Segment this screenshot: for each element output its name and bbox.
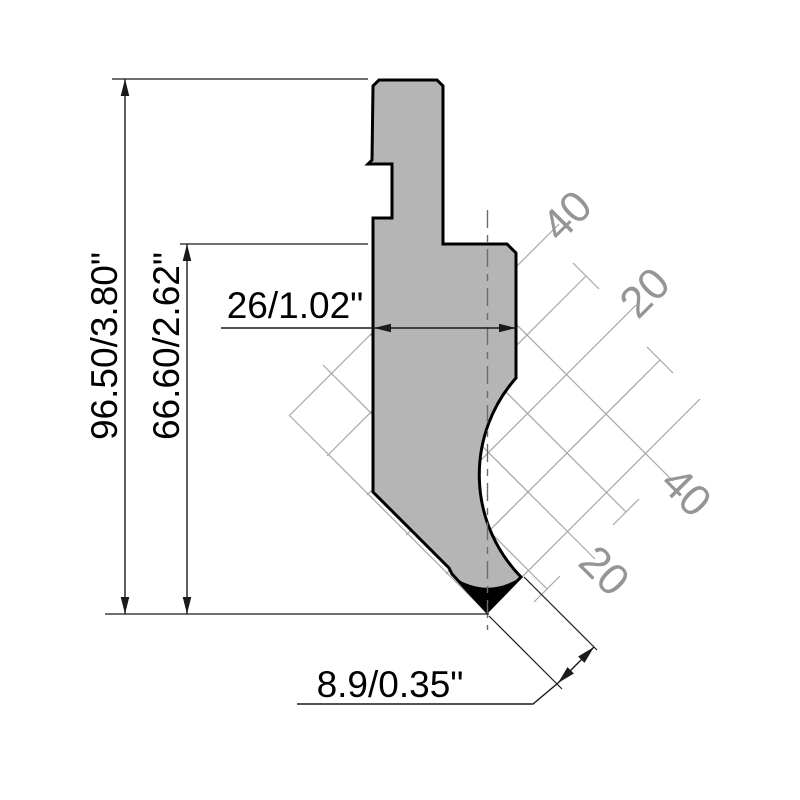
extension-line-apex [489, 616, 562, 689]
technical-drawing-canvas: 40 20 40 20 96.50/3.80" 66.60/2.62 [0, 0, 800, 800]
overall-height-text: 96.50/3.80" [84, 252, 125, 440]
working-height-text: 66.60/2.62" [146, 252, 187, 440]
arrow-up [121, 79, 130, 96]
punch-body [368, 80, 521, 612]
punch-profile-drawing: 40 20 40 20 96.50/3.80" 66.60/2.62 [0, 0, 800, 800]
punch-outline [368, 80, 521, 612]
body-width-text: 26/1.02" [227, 285, 364, 326]
arrow-down [121, 597, 130, 614]
arrow-down [183, 597, 192, 614]
dimension-tip-flat: 8.9/0.35" [297, 577, 597, 705]
grid-label-20-upper: 20 [610, 258, 679, 327]
extension-line-flat-end [524, 577, 597, 650]
grid-label-20-bottom: 20 [569, 536, 638, 605]
tip-flat-text: 8.9/0.35" [317, 664, 464, 705]
grid-line [289, 333, 372, 416]
grid-label-40-right: 40 [651, 457, 720, 526]
